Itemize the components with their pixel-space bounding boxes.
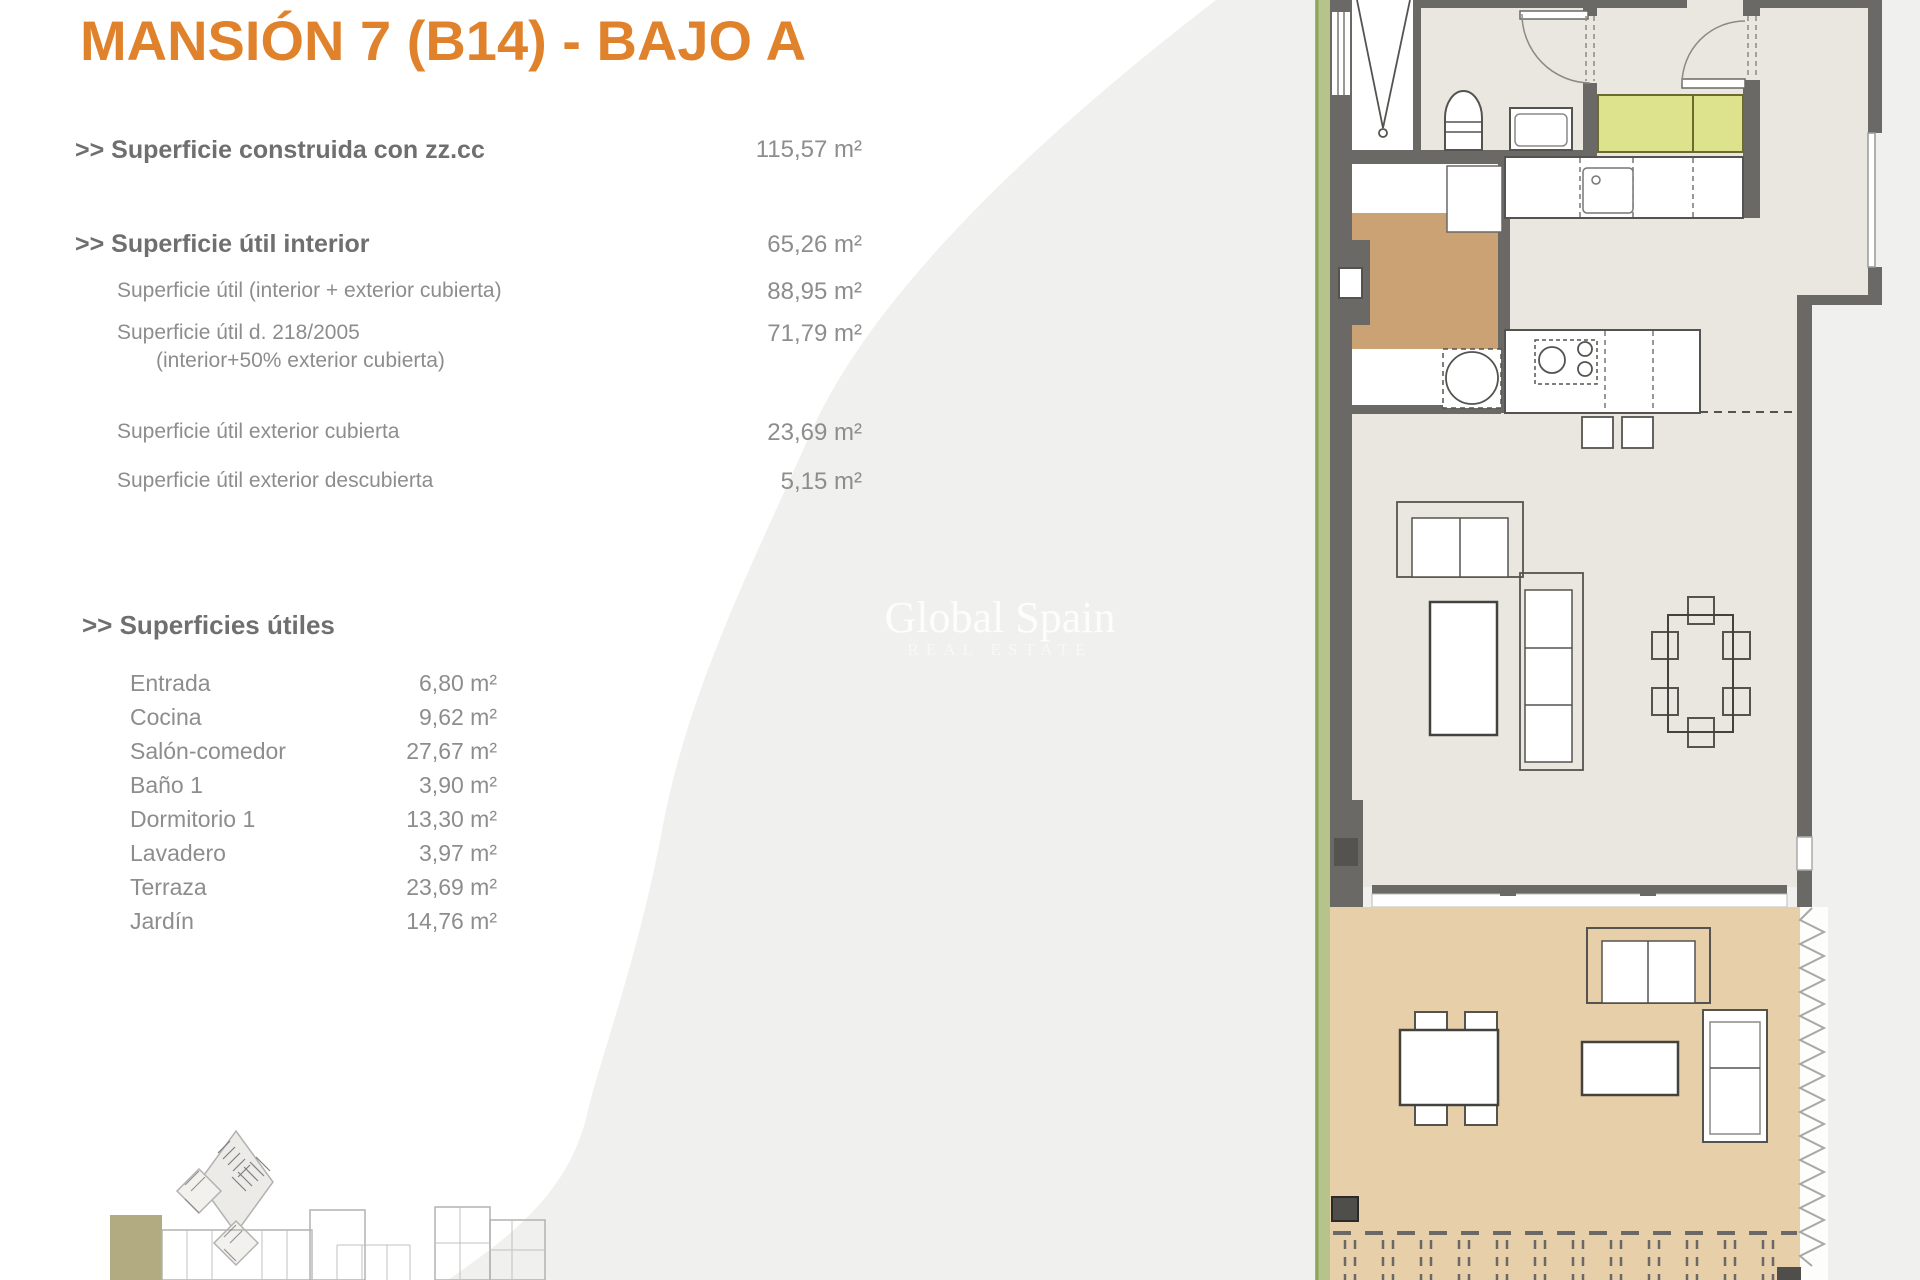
room-row-value: 23,69 m²	[337, 874, 497, 901]
value-ext-cubierta: 23,69 m²	[642, 419, 862, 447]
kitchen-sink	[1583, 168, 1633, 213]
watermark: Global Spain REAL ESTATE	[850, 596, 1150, 660]
sliding-door	[1372, 885, 1787, 907]
wall-pillar	[1334, 838, 1358, 866]
watermark-tagline: REAL ESTATE	[850, 640, 1150, 660]
terrace-coffee-table	[1582, 1042, 1678, 1095]
watermark-brand: Global Spain	[850, 596, 1150, 640]
label-util-int-ext: Superficie útil (interior + exterior cub…	[117, 279, 502, 303]
label-ext-descubierta: Superficie útil exterior descubierta	[117, 469, 433, 493]
lavadero-floor	[1352, 349, 1443, 406]
window-right-top	[1868, 133, 1875, 267]
room-row-label: Dormitorio 1	[130, 806, 255, 833]
label-util-interior: >> Superficie útil interior	[75, 230, 370, 259]
stool	[1622, 417, 1653, 448]
room-row-value: 27,67 m²	[337, 738, 497, 765]
rooms-section-header: >> Superficies útiles	[82, 610, 335, 641]
garden-pillar	[1777, 1267, 1801, 1280]
terrace-table	[1400, 1030, 1498, 1105]
room-row-label: Salón-comedor	[130, 738, 286, 765]
room-row-label: Cocina	[130, 704, 202, 731]
kitchen-counter-yellow	[1598, 95, 1743, 152]
value-superficie-construida: 115,57 m²	[642, 136, 862, 164]
coffee-table	[1430, 602, 1497, 735]
building-outline	[162, 1131, 545, 1280]
window-left	[1332, 12, 1350, 95]
sink	[1510, 108, 1572, 150]
room-row-label: Jardín	[130, 908, 194, 935]
plan-sheet-page: Global Spain REAL ESTATE MANSIÓN 7 (B14)…	[0, 0, 1920, 1280]
value-util-218: 71,79 m²	[642, 320, 862, 348]
room-row-label: Entrada	[130, 670, 211, 697]
sublabel-util-218: (interior+50% exterior cubierta)	[156, 349, 445, 373]
room-row-value: 6,80 m²	[337, 670, 497, 697]
room-row-value: 3,97 m²	[337, 840, 497, 867]
garden-strip	[1315, 0, 1330, 1280]
room-row-label: Lavadero	[130, 840, 226, 867]
label-util-218: Superficie útil d. 218/2005	[117, 321, 360, 345]
entry-door	[1339, 268, 1362, 298]
page-title: MANSIÓN 7 (B14) - BAJO A	[80, 8, 806, 73]
room-row-value: 3,90 m²	[337, 772, 497, 799]
entrada-floor	[1352, 213, 1498, 349]
value-ext-descubierta: 5,15 m²	[642, 468, 862, 496]
value-util-int-ext: 88,95 m²	[642, 278, 862, 306]
closet	[1447, 166, 1502, 232]
room-row-label: Terraza	[130, 874, 207, 901]
toilet	[1445, 91, 1482, 150]
window-right	[1797, 837, 1812, 870]
washing-machine	[1443, 349, 1501, 408]
highlighted-unit	[110, 1215, 162, 1280]
label-ext-cubierta: Superficie útil exterior cubierta	[117, 420, 399, 444]
site-key-plan	[100, 1125, 600, 1280]
floor-plan	[1315, 0, 1900, 1280]
room-row-value: 13,30 m²	[337, 806, 497, 833]
value-util-interior: 65,26 m²	[642, 231, 862, 259]
terrace-pillar	[1332, 1197, 1358, 1221]
label-superficie-construida: >> Superficie construida con zz.cc	[75, 136, 485, 165]
stool	[1582, 417, 1613, 448]
kitchen-counter	[1505, 157, 1743, 218]
room-row-label: Baño 1	[130, 772, 203, 799]
room-row-value: 9,62 m²	[337, 704, 497, 731]
room-row-value: 14,76 m²	[337, 908, 497, 935]
sun-lounger	[1703, 1010, 1767, 1142]
